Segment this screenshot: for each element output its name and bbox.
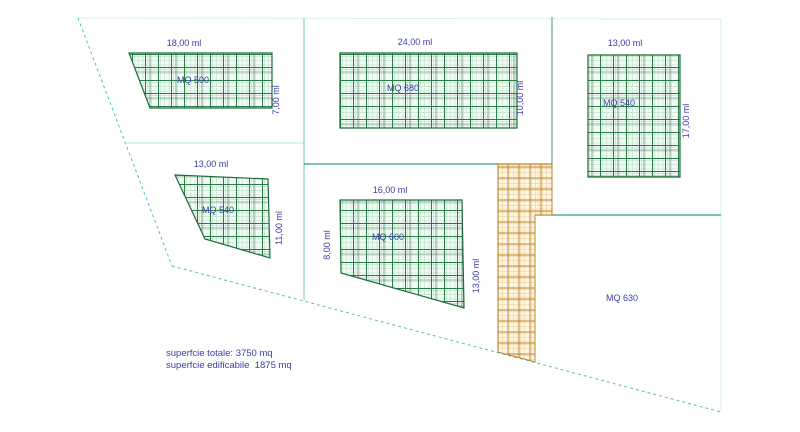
site-plan-canvas: 18,00 ml MQ 500 7,00 ml 24,00 ml MQ 680 …: [0, 0, 800, 432]
plot-540-left-label: MQ 540: [202, 205, 234, 215]
plot-500-right-dim: 7,00 ml: [271, 85, 281, 115]
legend-total-area: superfcie totale: 3750 mq: [166, 348, 273, 359]
plot-500-label: MQ 500: [177, 75, 209, 85]
plot-540-left-top-dim: 13,00 ml: [194, 159, 229, 169]
plot-540-left-right-dim: 11,00 ml: [274, 211, 284, 245]
plot-540-top-right-dim: 17,00 ml: [681, 104, 691, 139]
plot-600-top-dim: 16,00 ml: [373, 185, 408, 195]
plot-600-right-dim: 13,00 ml: [471, 259, 481, 294]
plot-600-left-dim: 8,00 ml: [322, 230, 332, 260]
plot-630-label: MQ 630: [606, 293, 638, 303]
plot-500-top-dim: 18,00 ml: [167, 38, 202, 48]
plot-540-top-shape: [588, 55, 680, 177]
plot-540-top-top-dim: 13,00 ml: [608, 38, 643, 48]
plot-600-shape: [340, 200, 464, 308]
plot-680-label: MQ 680: [387, 83, 419, 93]
plot-680-shape: [340, 53, 517, 128]
plot-680-top-dim: 24,00 ml: [398, 37, 433, 47]
plot-630-region: [535, 215, 721, 412]
legend-buildable-area: superfcie edificabile 1875 mq: [166, 360, 292, 371]
plot-540-top-label: MQ 540: [603, 98, 635, 108]
plot-680-right-dim: 10,00 ml: [515, 81, 525, 116]
site-plan-svg: 18,00 ml MQ 500 7,00 ml 24,00 ml MQ 680 …: [0, 0, 800, 432]
orange-hatch-strip: [498, 164, 552, 362]
boundary-top-line: [78, 18, 721, 19]
plot-540-left-shape: [175, 175, 270, 258]
plot-600-label: MQ 600: [372, 232, 404, 242]
